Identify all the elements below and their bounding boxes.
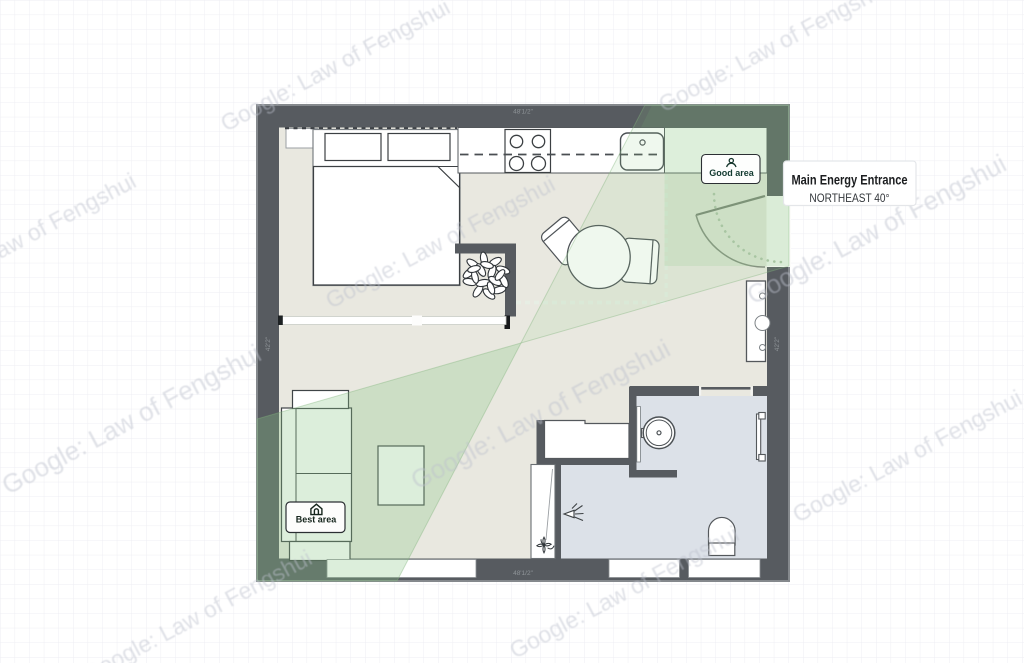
svg-text:48'1/2": 48'1/2"	[513, 109, 534, 116]
svg-text:NORTHEAST 40°: NORTHEAST 40°	[809, 192, 889, 205]
svg-text:Main Energy Entrance: Main Energy Entrance	[791, 172, 907, 187]
svg-text:42'2": 42'2"	[265, 336, 272, 351]
svg-text:48'1/2": 48'1/2"	[513, 570, 534, 577]
svg-text:Good area: Good area	[709, 168, 755, 178]
svg-text:42'2": 42'2"	[774, 336, 781, 351]
svg-text:Best area: Best area	[296, 515, 338, 525]
